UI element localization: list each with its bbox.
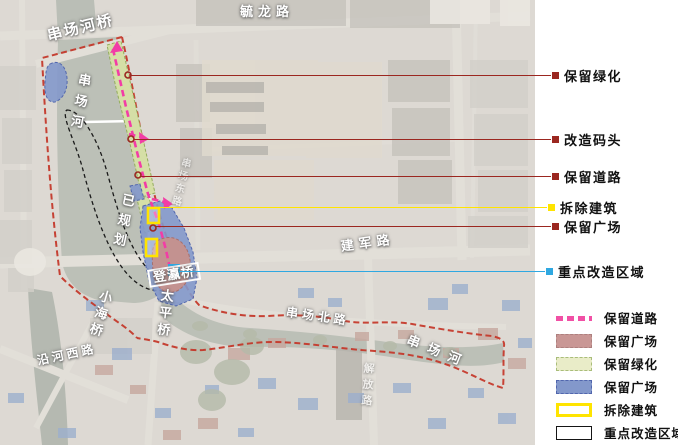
callout-line-retain-road [141, 176, 551, 177]
callout-label-demolish-building: 拆除建筑 [560, 198, 618, 217]
legend-row-3: 保留广场 [556, 379, 678, 394]
legend-row-0: 保留道路 [556, 310, 678, 325]
callout-label-retain-greenery: 保留绿化 [564, 66, 622, 85]
callout-label-retain-road: 保留道路 [564, 167, 622, 186]
callout-line-renovate-dock [134, 139, 551, 140]
legend-label-4: 拆除建筑 [604, 400, 658, 419]
legend-row-5: 重点改造区域 [556, 425, 678, 440]
callout-cap-retain-plaza [552, 223, 559, 230]
legend-swatch-fill-green [556, 357, 592, 371]
callout-cap-retain-road [552, 173, 559, 180]
legend-label-3: 保留广场 [604, 377, 658, 396]
legend-swatch-outline-yellow [556, 403, 592, 417]
legend-label-2: 保留绿化 [604, 354, 658, 373]
callout-cap-key-renovation-area [546, 268, 553, 275]
legend-row-4: 拆除建筑 [556, 402, 678, 417]
legend-swatch-dash-magenta [556, 316, 592, 321]
callout-label-key-renovation-area: 重点改造区域 [558, 262, 645, 281]
callout-line-key-renovation-area [179, 271, 545, 272]
legend-label-0: 保留道路 [604, 308, 658, 327]
callout-cap-retain-greenery [552, 72, 559, 79]
legend-swatch-fill-rose [556, 334, 592, 348]
legend-swatch-outline-black [556, 426, 592, 440]
boundary-red-dashed [42, 37, 504, 388]
legend-row-2: 保留绿化 [556, 356, 678, 371]
callout-cap-demolish-building [548, 204, 555, 211]
legend: 保留道路保留广场保留绿化保留广场拆除建筑重点改造区域 [556, 310, 678, 440]
renewal-analysis-map: 毓龙路串场河桥串场河已规划登瀛桥小海桥太平桥沿河西路串场北路串场河建军路解放路串… [0, 0, 678, 445]
callout-label-retain-plaza: 保留广场 [564, 217, 622, 236]
legend-swatch-fill-blue [556, 380, 592, 394]
callout-line-retain-greenery [131, 75, 551, 76]
map-label-jiefang-road: 解放路 [359, 362, 374, 411]
legend-row-1: 保留广场 [556, 333, 678, 348]
map-label-yulong-road: 毓龙路 [240, 5, 294, 19]
callout-label-renovate-dock: 改造码头 [564, 130, 622, 149]
legend-label-1: 保留广场 [604, 331, 658, 350]
callout-line-retain-plaza [156, 226, 551, 227]
callout-cap-renovate-dock [552, 136, 559, 143]
callout-line-demolish-building [159, 207, 547, 208]
legend-label-5: 重点改造区域 [604, 423, 678, 442]
